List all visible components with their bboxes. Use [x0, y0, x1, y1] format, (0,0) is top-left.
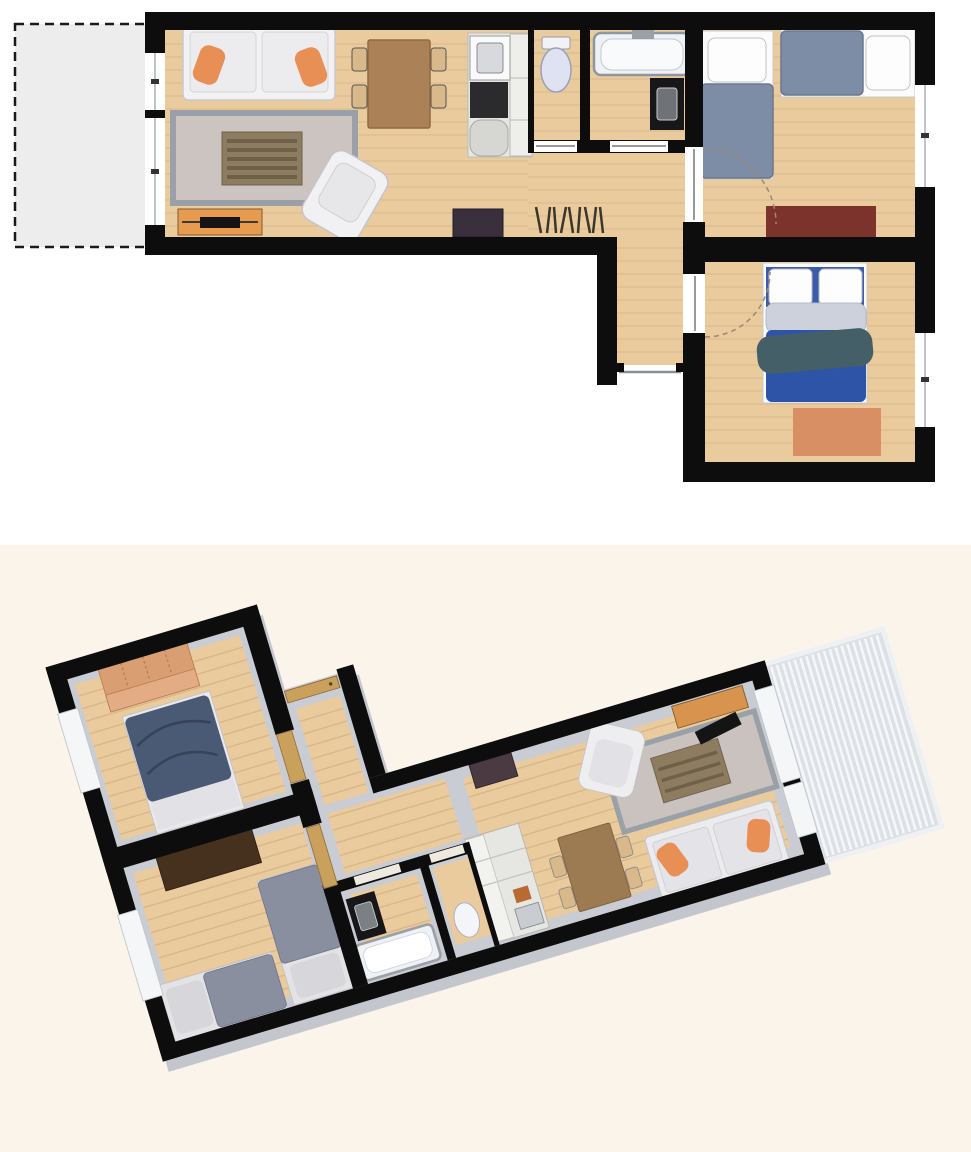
dining-chair	[431, 85, 446, 108]
window	[145, 118, 165, 225]
dining-table	[368, 40, 430, 128]
window	[145, 53, 165, 110]
kids-rug	[766, 206, 876, 242]
vanity-sink	[657, 88, 677, 120]
bed-pillow	[708, 38, 766, 82]
cooktop	[470, 82, 508, 118]
floor-hall	[528, 153, 685, 237]
bathtub-basin	[601, 39, 683, 70]
wall	[145, 12, 935, 30]
bed-pillow	[819, 269, 862, 305]
door-master-bedroom	[685, 274, 705, 333]
door-kids-bedroom	[685, 147, 703, 222]
dining-chair	[352, 85, 367, 108]
wall	[683, 237, 935, 262]
wall	[597, 255, 617, 385]
toilet	[541, 48, 571, 92]
wall	[683, 333, 705, 482]
master-rug	[793, 408, 881, 456]
wall	[685, 30, 703, 147]
single-bed-blanket	[701, 84, 773, 178]
wc-2d	[541, 37, 571, 92]
kitchen-lower-unit	[470, 120, 508, 156]
window	[915, 333, 935, 427]
tv	[200, 217, 240, 228]
sink-basin	[477, 43, 503, 73]
single-bed-blanket	[781, 31, 863, 95]
throw-pillow	[746, 818, 771, 853]
bed-pillow	[769, 269, 812, 305]
duvet-fold	[766, 303, 866, 333]
door-wc	[534, 141, 577, 152]
bathtub-faucet	[632, 30, 654, 39]
floor-corridor	[617, 237, 683, 365]
wall	[528, 30, 534, 153]
door-bathroom	[610, 141, 668, 152]
floor-plan-canvas	[0, 0, 971, 1152]
sideboard	[453, 209, 503, 237]
entrance-door	[617, 363, 683, 381]
kitchen-2d	[468, 33, 532, 157]
balcony-2d	[15, 24, 148, 247]
toilet-tank	[542, 37, 570, 49]
dining-chair	[431, 48, 446, 71]
bed-pillow	[866, 36, 910, 90]
wall	[580, 30, 590, 153]
dining-chair	[352, 48, 367, 71]
screenshot-root	[0, 0, 971, 1152]
wall	[145, 237, 617, 255]
wall	[683, 462, 935, 482]
window	[915, 85, 935, 187]
